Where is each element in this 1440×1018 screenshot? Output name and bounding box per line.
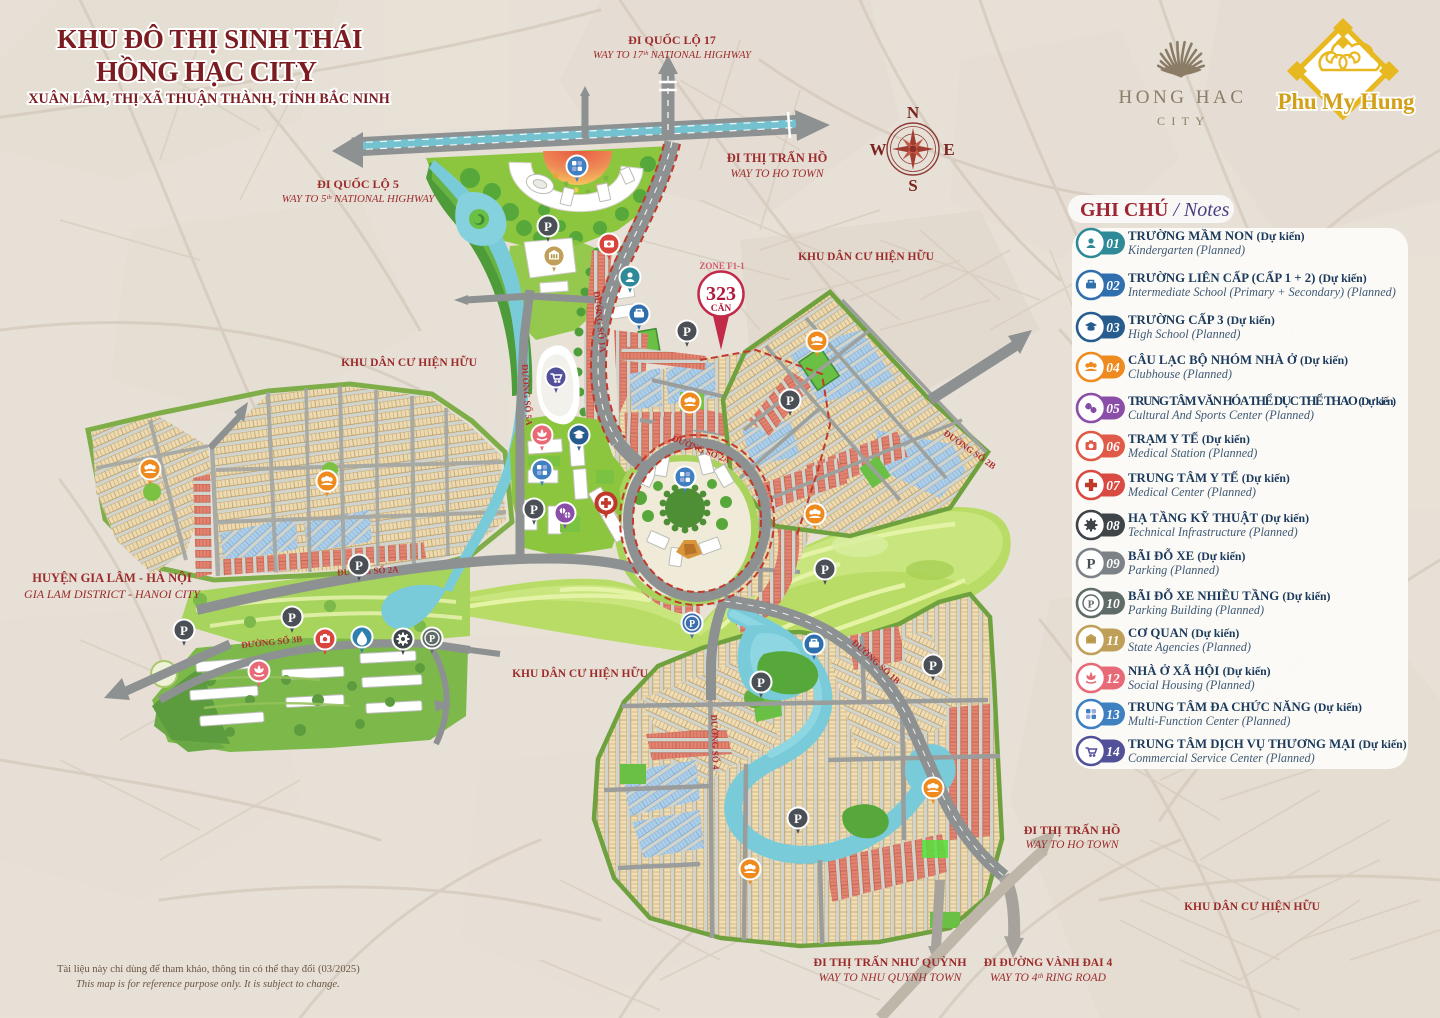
- svg-text:S: S: [908, 176, 917, 195]
- svg-text:Social Housing (Planned): Social Housing (Planned): [1128, 678, 1255, 692]
- svg-text:TRUNG TÂM DỊCH VỤ THƯƠNG MẠI (: TRUNG TÂM DỊCH VỤ THƯƠNG MẠI (Dự kiến): [1128, 737, 1407, 751]
- svg-text:WAY TO HO TOWN: WAY TO HO TOWN: [730, 168, 824, 180]
- svg-text:TRƯỜNG CẤP 3 (Dự kiến): TRƯỜNG CẤP 3 (Dự kiến): [1128, 312, 1275, 327]
- svg-text:CITY: CITY: [1157, 114, 1209, 128]
- svg-text:NHÀ Ở XÃ HỘI (Dự kiến): NHÀ Ở XÃ HỘI (Dự kiến): [1128, 664, 1271, 678]
- svg-text:P: P: [544, 219, 552, 234]
- svg-text:ĐI THỊ TRẤN HỒ: ĐI THỊ TRẤN HỒ: [727, 150, 828, 165]
- svg-text:11: 11: [1107, 633, 1120, 648]
- svg-text:ĐI ĐƯỜNG VÀNH ĐAI 4: ĐI ĐƯỜNG VÀNH ĐAI 4: [984, 955, 1113, 969]
- svg-text:P: P: [288, 610, 296, 625]
- svg-text:This map is for reference purp: This map is for reference purpose only. …: [76, 979, 340, 990]
- svg-text:P: P: [530, 502, 538, 517]
- svg-text:Multi-Function Center (Planned: Multi-Function Center (Planned): [1127, 714, 1290, 728]
- svg-text:ĐI QUỐC LỘ 17: ĐI QUỐC LỘ 17: [628, 32, 716, 47]
- svg-text:Medical Center (Planned): Medical Center (Planned): [1127, 485, 1256, 499]
- svg-text:Kindergarten (Planned): Kindergarten (Planned): [1127, 243, 1245, 257]
- svg-text:P: P: [429, 634, 435, 645]
- svg-text:01: 01: [1106, 236, 1120, 251]
- svg-text:323: 323: [706, 283, 736, 305]
- svg-text:ZONE F1-1: ZONE F1-1: [699, 261, 745, 271]
- svg-text:KHU DÂN CƯ HIỆN HỮU: KHU DÂN CƯ HIỆN HỮU: [341, 355, 478, 369]
- svg-text:GIA LAM DISTRICT - HANOI CITY: GIA LAM DISTRICT - HANOI CITY: [24, 587, 201, 601]
- svg-text:TRẠM Y TẾ (Dự kiến): TRẠM Y TẾ (Dự kiến): [1128, 431, 1250, 446]
- svg-text:08: 08: [1106, 518, 1120, 533]
- svg-text:04: 04: [1106, 360, 1120, 375]
- svg-text:ĐI QUỐC LỘ 5: ĐI QUỐC LỘ 5: [317, 176, 399, 191]
- svg-text:06: 06: [1106, 439, 1120, 454]
- svg-text:HONG HAC: HONG HAC: [1119, 87, 1246, 108]
- svg-text:P: P: [821, 562, 829, 577]
- svg-text:ĐƯỜNG SỐ 4: ĐƯỜNG SỐ 4: [709, 714, 721, 770]
- svg-text:WAY TO 4ᵗʰ RING ROAD: WAY TO 4ᵗʰ RING ROAD: [990, 972, 1107, 984]
- svg-text:05: 05: [1106, 401, 1120, 416]
- svg-text:TRƯỜNG LIÊN CẤP (CẤP 1 + 2) (D: TRƯỜNG LIÊN CẤP (CẤP 1 + 2) (Dự kiến): [1128, 270, 1367, 285]
- svg-text:Phu My Hung: Phu My Hung: [1278, 89, 1416, 114]
- svg-text:N: N: [907, 103, 920, 122]
- svg-text:TRUNG TÂM Y TẾ (Dự kiến): TRUNG TÂM Y TẾ (Dự kiến): [1128, 470, 1290, 485]
- svg-text:BÃI ĐỖ XE NHIỀU TẦNG (Dự kiến): BÃI ĐỖ XE NHIỀU TẦNG (Dự kiến): [1128, 588, 1331, 603]
- svg-text:WAY TO HO TOWN: WAY TO HO TOWN: [1025, 839, 1119, 851]
- svg-text:P: P: [1086, 557, 1095, 573]
- svg-text:HUYỆN GIA LÂM - HÀ NỘI: HUYỆN GIA LÂM - HÀ NỘI: [32, 571, 192, 585]
- svg-text:Medical Station (Planned): Medical Station (Planned): [1127, 446, 1257, 460]
- svg-text:BÃI ĐỖ XE (Dự kiến): BÃI ĐỖ XE (Dự kiến): [1128, 548, 1245, 563]
- svg-text:KHU DÂN CƯ HIỆN HỮU: KHU DÂN CƯ HIỆN HỮU: [1184, 899, 1321, 913]
- svg-text:Cultural And Sports Center (Pl: Cultural And Sports Center (Planned): [1128, 408, 1314, 422]
- svg-text:P: P: [786, 393, 794, 408]
- svg-text:P: P: [794, 811, 802, 826]
- svg-text:TRƯỜNG MẦM NON (Dự kiến): TRƯỜNG MẦM NON (Dự kiến): [1128, 228, 1305, 243]
- svg-text:ĐI THỊ TRẤN HỒ: ĐI THỊ TRẤN HỒ: [1024, 822, 1121, 837]
- svg-text:09: 09: [1106, 556, 1120, 571]
- svg-text:E: E: [943, 140, 954, 159]
- svg-text:CÂU LẠC BỘ NHÓM NHÀ Ở (Dự kiến: CÂU LẠC BỘ NHÓM NHÀ Ở (Dự kiến): [1128, 353, 1348, 367]
- svg-text:P: P: [683, 324, 691, 339]
- svg-text:HẠ TẦNG KỸ THUẬT (Dự kiến): HẠ TẦNG KỸ THUẬT (Dự kiến): [1128, 510, 1309, 525]
- svg-text:KHU DÂN CƯ HIỆN HỮU: KHU DÂN CƯ HIỆN HỮU: [512, 666, 649, 680]
- svg-text:XUÂN LÂM, THỊ XÃ THUẬN THÀNH,: XUÂN LÂM, THỊ XÃ THUẬN THÀNH, TỈNH BẮC N…: [28, 89, 390, 107]
- svg-text:07: 07: [1106, 478, 1121, 493]
- svg-text:13: 13: [1106, 707, 1120, 722]
- svg-text:Parking (Planned): Parking (Planned): [1127, 563, 1219, 577]
- svg-text:Tài liệu này chỉ dùng để tham: Tài liệu này chỉ dùng để tham khảo, thôn…: [57, 964, 360, 975]
- svg-text:KHU ĐÔ THỊ SINH THÁI: KHU ĐÔ THỊ SINH THÁI: [57, 24, 363, 54]
- svg-text:TRUNG TÂM ĐA CHỨC NĂNG (Dự kiế: TRUNG TÂM ĐA CHỨC NĂNG (Dự kiến): [1128, 700, 1362, 714]
- svg-text:HỒNG HẠC CITY: HỒNG HẠC CITY: [96, 56, 318, 88]
- svg-text:14: 14: [1106, 744, 1120, 759]
- svg-text:P: P: [355, 558, 363, 573]
- svg-text:12: 12: [1106, 671, 1120, 686]
- svg-text:02: 02: [1106, 278, 1120, 293]
- svg-text:10: 10: [1106, 596, 1120, 611]
- svg-text:WAY TO NHU QUYNH TOWN: WAY TO NHU QUYNH TOWN: [819, 972, 963, 984]
- svg-text:WAY TO 5ᵗʰ NATIONAL HIGHWAY: WAY TO 5ᵗʰ NATIONAL HIGHWAY: [282, 193, 436, 205]
- svg-text:Commercial Service Center (Pla: Commercial Service Center (Planned): [1128, 751, 1315, 765]
- svg-text:Clubhouse (Planned): Clubhouse (Planned): [1128, 367, 1232, 381]
- svg-text:03: 03: [1106, 320, 1120, 335]
- svg-text:P: P: [929, 658, 937, 673]
- svg-text:Intermediate School (Primary +: Intermediate School (Primary + Secondary…: [1127, 285, 1396, 299]
- svg-text:State Agencies (Planned): State Agencies (Planned): [1128, 640, 1251, 654]
- svg-text:CƠ QUAN (Dự kiến): CƠ QUAN (Dự kiến): [1128, 626, 1239, 640]
- svg-text:P: P: [689, 619, 695, 630]
- svg-text:CĂN: CĂN: [711, 302, 732, 314]
- svg-text:GHI CHÚ / Notes: GHI CHÚ / Notes: [1080, 197, 1230, 221]
- svg-text:W: W: [870, 140, 887, 159]
- svg-text:Parking Building (Planned): Parking Building (Planned): [1127, 603, 1264, 617]
- svg-text:P: P: [180, 623, 188, 638]
- svg-text:P: P: [757, 675, 765, 690]
- svg-text:WAY TO 17ᵗʰ NATIONAL HIGHWAY: WAY TO 17ᵗʰ NATIONAL HIGHWAY: [593, 49, 752, 61]
- svg-text:TRUNG TÂM VĂN HÓA THỂ DỤC THỂ: TRUNG TÂM VĂN HÓA THỂ DỤC THỂ THAO (Dự k…: [1128, 393, 1396, 408]
- svg-text:ĐI THỊ TRẤN NHƯ QUỲNH: ĐI THỊ TRẤN NHƯ QUỲNH: [813, 954, 967, 969]
- svg-text:KHU DÂN CƯ HIỆN HỮU: KHU DÂN CƯ HIỆN HỮU: [798, 249, 935, 263]
- svg-text:High School (Planned): High School (Planned): [1127, 327, 1240, 341]
- svg-text:Technical Infrastructure (Plan: Technical Infrastructure (Planned): [1128, 525, 1298, 539]
- svg-text:P: P: [1088, 599, 1095, 611]
